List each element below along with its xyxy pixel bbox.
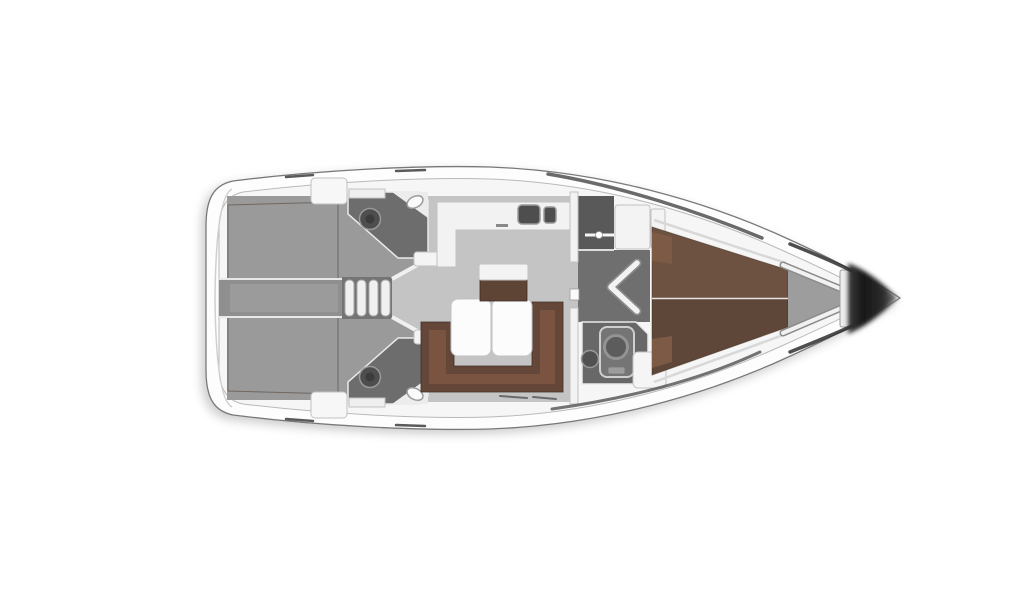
forward-wardrobe-large xyxy=(615,205,650,249)
companionway xyxy=(219,277,394,319)
aft-head-starboard-toilet-bowl xyxy=(366,215,375,224)
forward-berth-pillow-top xyxy=(652,232,672,264)
yacht-floorplan-svg xyxy=(0,0,1024,600)
aft-head-starboard-shelf xyxy=(349,189,385,198)
companionway-step-3 xyxy=(369,280,378,316)
galley-sink-large xyxy=(518,205,540,224)
saloon-table-leaf-left xyxy=(451,299,491,356)
saloon-stool-base xyxy=(480,278,527,301)
bulkhead-upper xyxy=(570,192,578,262)
companionway-step-4 xyxy=(381,280,390,316)
shower-basin xyxy=(605,336,628,359)
saloon-stool-top xyxy=(479,264,528,280)
companionway-step-2 xyxy=(357,280,366,316)
companionway-step-1 xyxy=(345,280,354,316)
yacht-floorplan-page xyxy=(0,0,1024,600)
galley-handle xyxy=(496,224,508,227)
wardrobe-starboard xyxy=(311,178,347,204)
galley-sink-small xyxy=(544,207,556,223)
forward-head-toilet xyxy=(582,351,599,368)
hull-window-top-2 xyxy=(396,170,425,171)
saloon-table-leaf-right xyxy=(492,299,532,356)
corridor-floor-light xyxy=(230,284,338,312)
hull-window-bottom-2 xyxy=(396,425,425,426)
bulkhead-lower xyxy=(570,308,578,404)
aft-head-port-shelf xyxy=(349,398,385,407)
aft-head-port-toilet-bowl xyxy=(366,373,375,382)
bow-cone xyxy=(848,263,898,334)
wet-locker-door-knob xyxy=(596,232,603,239)
shower-grate xyxy=(608,367,625,374)
bulkhead-door-handle xyxy=(570,289,579,300)
wardrobe-port xyxy=(311,392,347,418)
wet-locker xyxy=(578,196,614,250)
